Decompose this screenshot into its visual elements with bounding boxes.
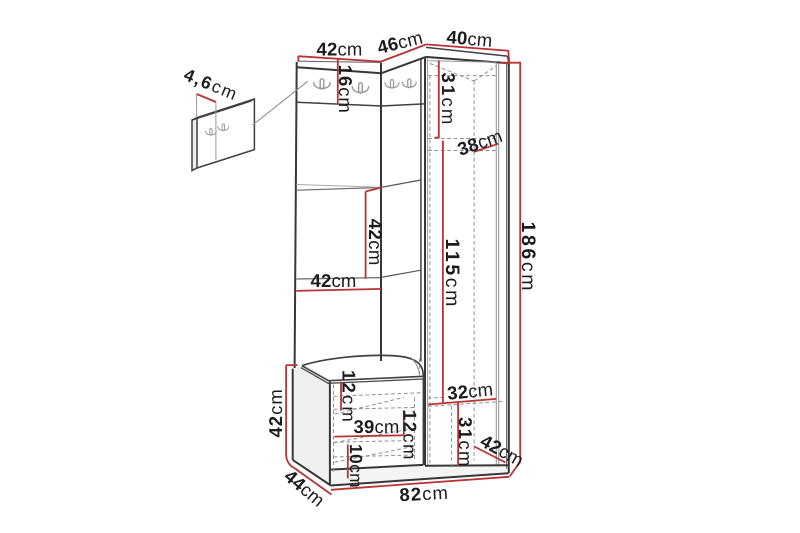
svg-text:16cm: 16cm bbox=[335, 65, 356, 114]
svg-text:82cm: 82cm bbox=[399, 482, 450, 506]
svg-text:32cm: 32cm bbox=[446, 378, 494, 403]
svg-text:31cm: 31cm bbox=[438, 73, 459, 127]
svg-text:12cm: 12cm bbox=[400, 410, 421, 461]
svg-text:186cm: 186cm bbox=[517, 222, 539, 294]
svg-text:42cm: 42cm bbox=[265, 388, 286, 437]
svg-text:42cm: 42cm bbox=[316, 38, 362, 59]
svg-text:42cm: 42cm bbox=[310, 270, 356, 291]
svg-text:42cm: 42cm bbox=[365, 219, 386, 266]
svg-text:31cm: 31cm bbox=[455, 417, 476, 468]
svg-text:115cm: 115cm bbox=[441, 239, 463, 309]
svg-text:40cm: 40cm bbox=[446, 26, 494, 51]
svg-text:10cm: 10cm bbox=[346, 444, 366, 488]
svg-text:39cm: 39cm bbox=[353, 416, 399, 437]
